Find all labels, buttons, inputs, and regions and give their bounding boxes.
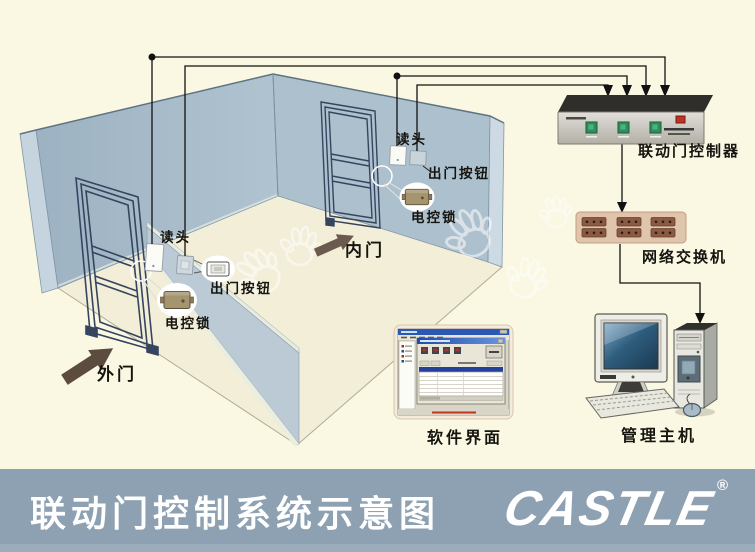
management-computer <box>586 314 717 418</box>
right-wall-end-cap <box>488 116 504 267</box>
outer-door-label: 外门 <box>97 364 137 384</box>
software-window <box>394 325 513 419</box>
diagram-title: 联动门控制系统示意图 <box>30 485 440 537</box>
lock-icon <box>161 292 194 309</box>
registered-mark-icon: ® <box>717 477 728 494</box>
network-switch-label: 网络交换机 <box>642 248 727 266</box>
brand-logo: CASTLE ® <box>505 475 745 545</box>
inner-door-reader <box>389 146 406 166</box>
footer-band: 联动门控制系统示意图 CASTLE ® <box>0 469 755 552</box>
keyboard <box>586 389 679 418</box>
inner-exit-button-device <box>410 151 427 166</box>
down-arrow-icon <box>695 313 705 324</box>
inner-reader-label: 读头 <box>396 131 427 147</box>
network-switch-device <box>576 212 686 243</box>
exit-button-icon <box>207 262 229 276</box>
outer-reader-label: 读头 <box>160 229 191 245</box>
table-header <box>419 367 503 372</box>
management-host-label: 管理主机 <box>621 426 697 445</box>
system-diagram: 联动门控制器 网络交换机 <box>0 0 755 470</box>
inner-door-label: 内门 <box>345 240 385 260</box>
controller-label: 联动门控制器 <box>638 142 740 160</box>
outer-exit-button-device <box>176 255 193 274</box>
diagram-canvas: 联动门控制器 网络交换机 <box>0 0 755 552</box>
outer-door-reader <box>145 243 164 271</box>
inner-lock-label: 电控锁 <box>411 209 458 225</box>
door-controller-device <box>558 95 713 144</box>
outer-lock-label: 电控锁 <box>165 315 212 331</box>
software-ui-label: 软件界面 <box>427 428 503 447</box>
outer-exit-button-label: 出门按钮 <box>210 280 272 296</box>
inner-exit-button-label: 出门按钮 <box>428 165 490 181</box>
down-arrow-icon <box>617 202 627 213</box>
footer-shine <box>0 544 755 552</box>
brand-logo-text: CASTLE <box>499 481 719 537</box>
tower <box>674 323 717 408</box>
lock-icon <box>402 189 432 204</box>
power-led <box>676 116 685 123</box>
